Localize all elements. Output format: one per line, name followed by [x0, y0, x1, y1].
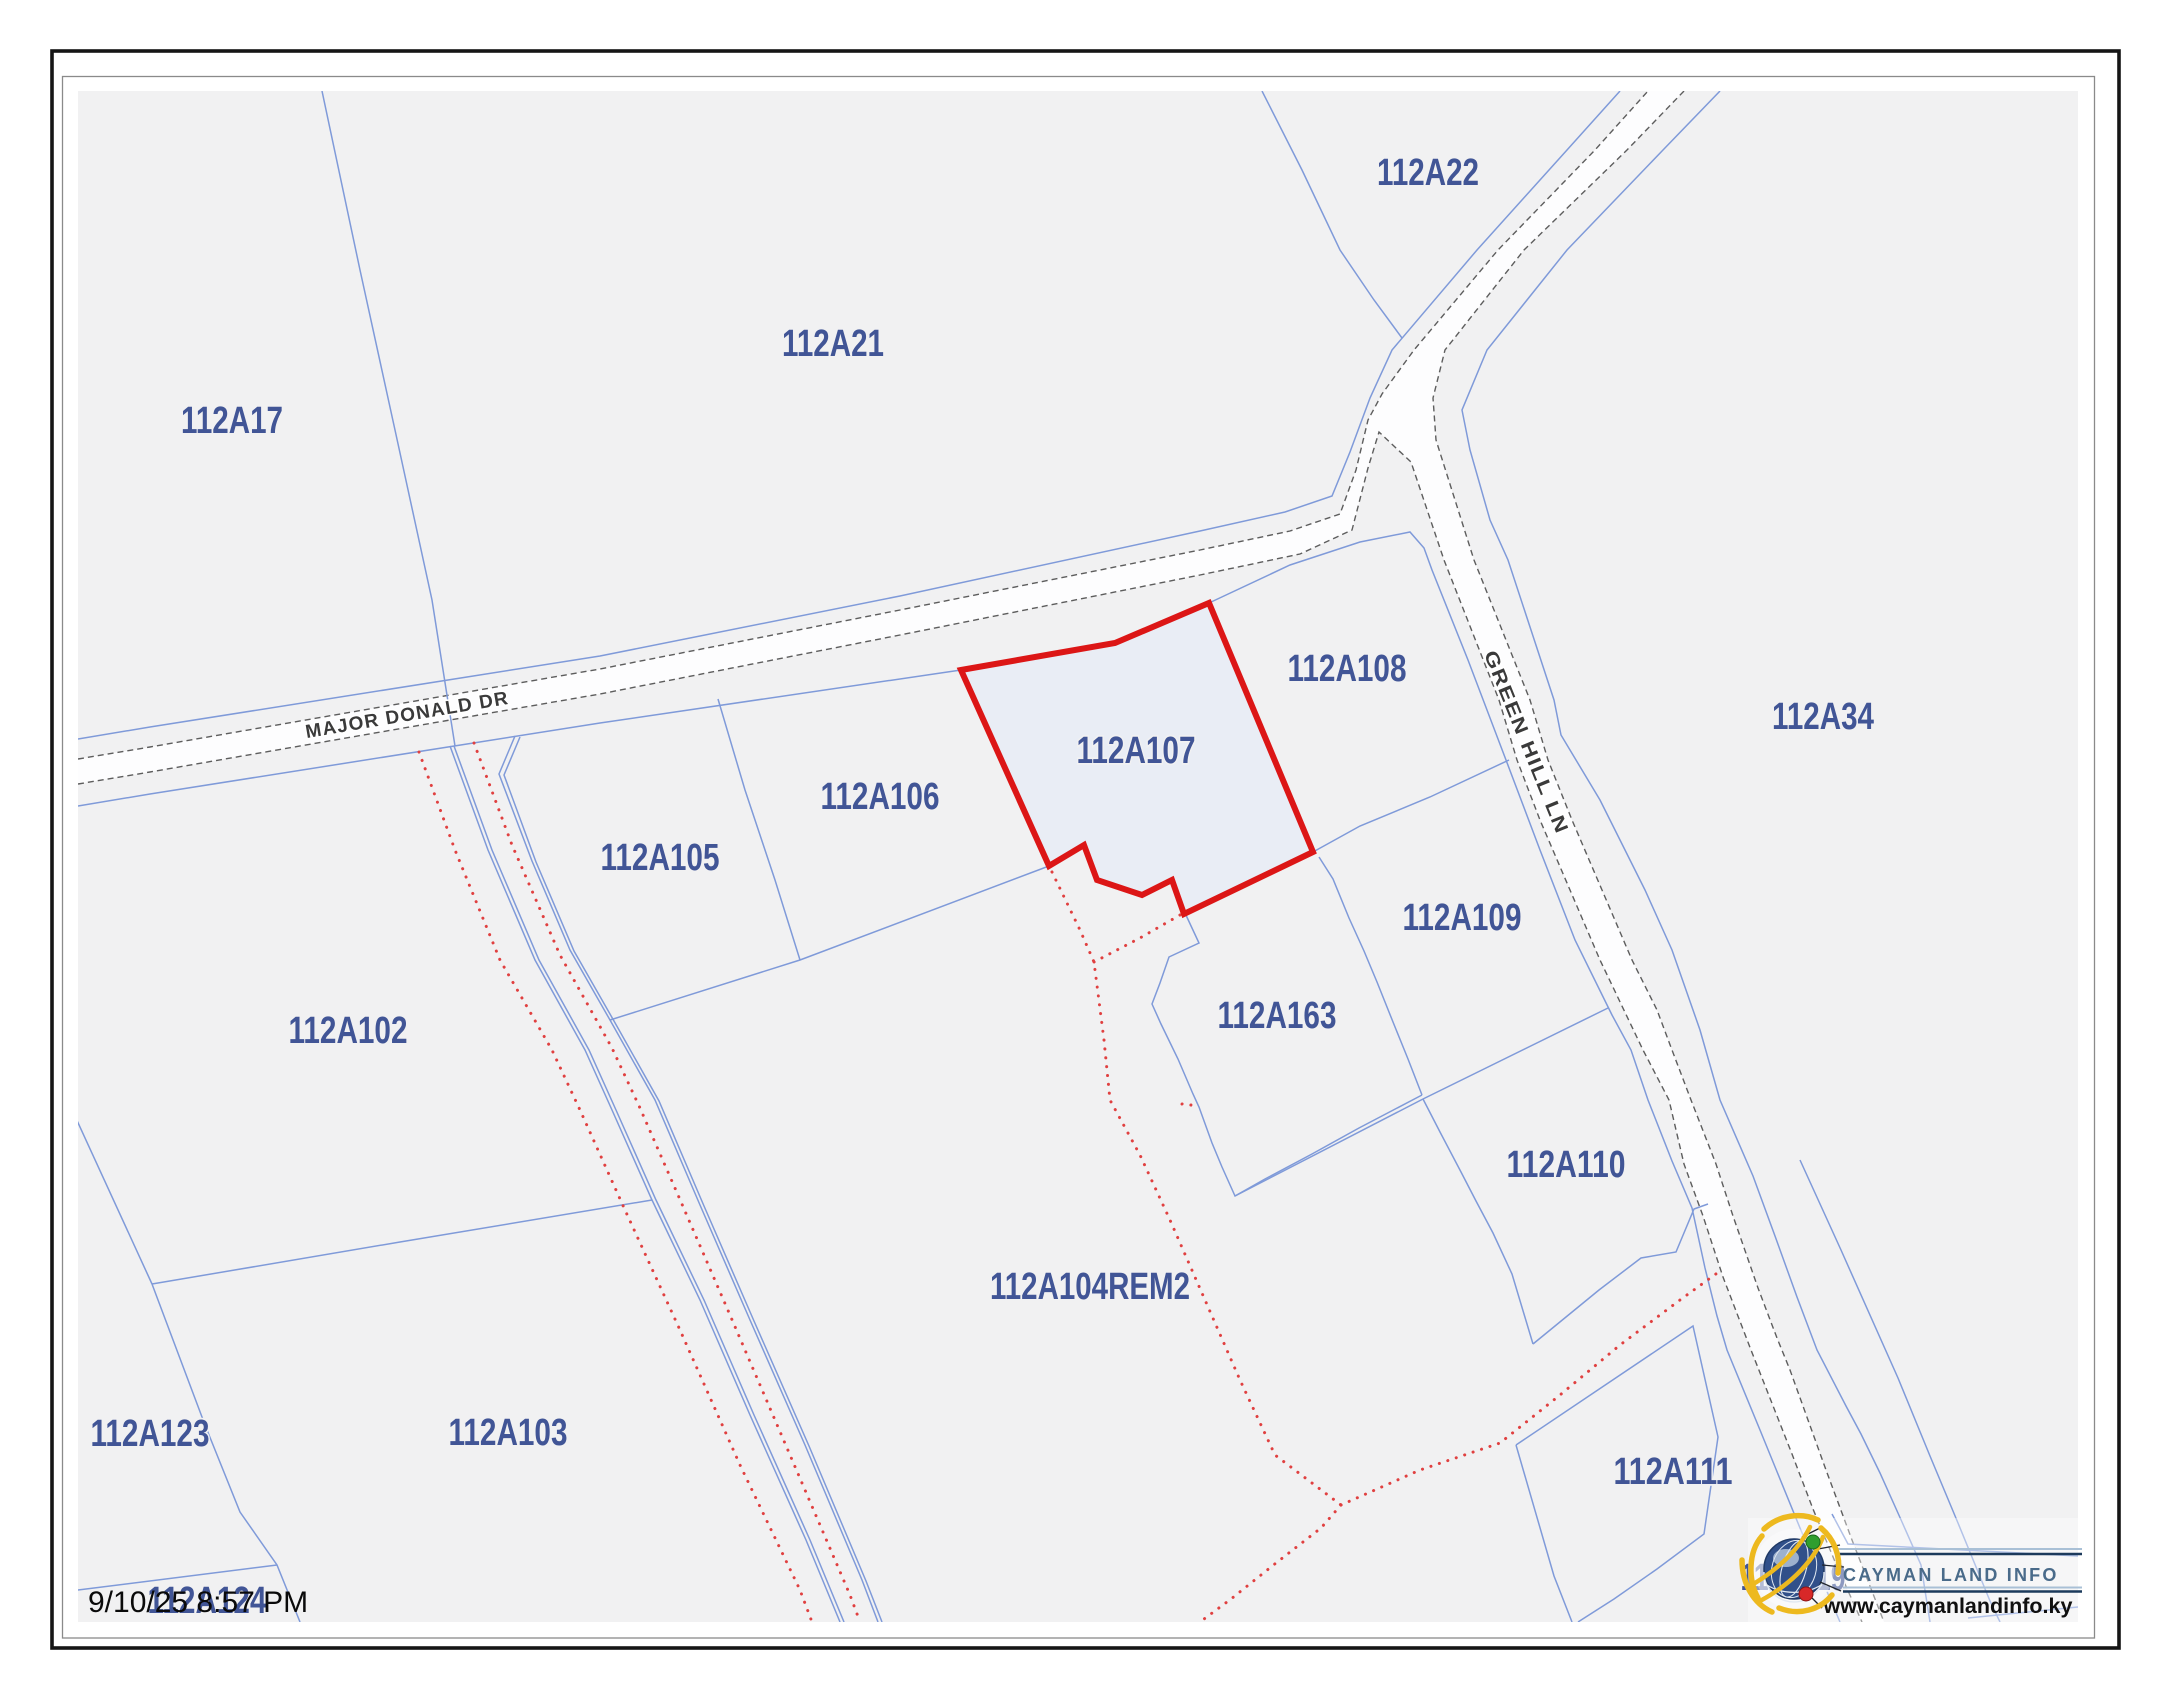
svg-text:112A111: 112A111: [1614, 1451, 1733, 1493]
svg-text:112A110: 112A110: [1507, 1144, 1626, 1186]
svg-text:112A104REM2: 112A104REM2: [990, 1266, 1190, 1308]
svg-text:112A106: 112A106: [821, 776, 940, 818]
svg-text:112A108: 112A108: [1288, 648, 1407, 690]
svg-text:112A107: 112A107: [1077, 730, 1196, 772]
svg-text:9/10/25 8:57 PM: 9/10/25 8:57 PM: [88, 1586, 308, 1619]
svg-text:112A105: 112A105: [601, 837, 720, 879]
svg-text:112A17: 112A17: [181, 400, 283, 442]
svg-text:CAYMAN LAND INFO: CAYMAN LAND INFO: [1843, 1565, 2059, 1585]
svg-text:112A34: 112A34: [1772, 696, 1874, 738]
svg-text:www.caymanlandinfo.ky: www.caymanlandinfo.ky: [1823, 1594, 2073, 1618]
svg-text:112A22: 112A22: [1377, 152, 1479, 194]
svg-text:112A21: 112A21: [782, 323, 884, 365]
svg-text:112A109: 112A109: [1403, 897, 1522, 939]
svg-text:112A103: 112A103: [449, 1412, 568, 1454]
svg-text:112A102: 112A102: [289, 1010, 408, 1052]
svg-text:112A163: 112A163: [1218, 995, 1337, 1037]
svg-text:112A123: 112A123: [91, 1413, 210, 1455]
